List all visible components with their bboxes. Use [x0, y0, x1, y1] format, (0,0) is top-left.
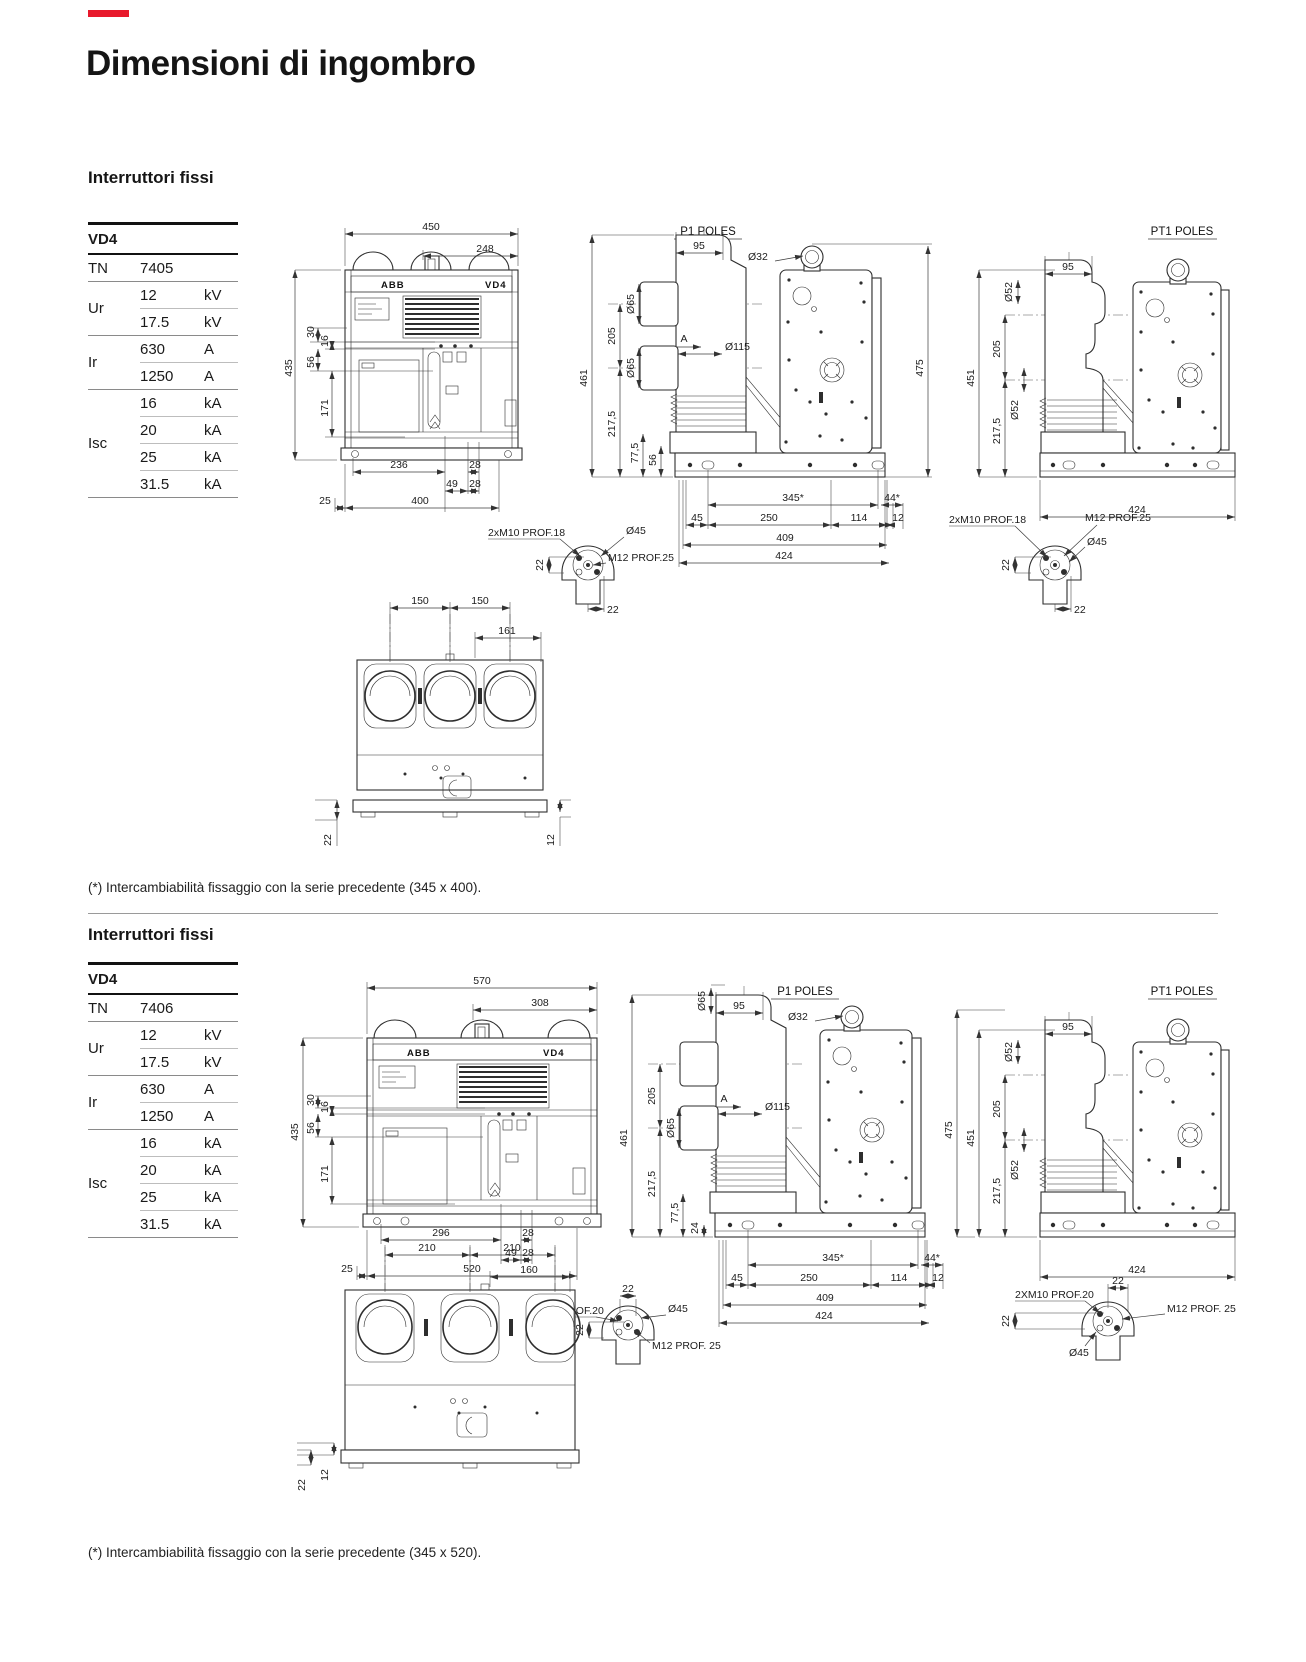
- dim-461: 461: [578, 369, 590, 387]
- p1-base-rail: [675, 453, 885, 477]
- detail-dim-22a: 22: [622, 1283, 634, 1295]
- section-divider: [88, 913, 1218, 914]
- dim-205: 205: [606, 327, 618, 345]
- dim-114: 114: [851, 512, 868, 524]
- dim-o65-top: Ø65: [696, 991, 708, 1011]
- section-arrow-a: A: [680, 333, 687, 345]
- row-value: 17.5: [140, 1049, 204, 1076]
- pt1-poles-drawing-7405: PT1 POLES: [945, 220, 1285, 640]
- dim-12: 12: [545, 834, 557, 846]
- row-value: 31.5: [140, 471, 204, 498]
- row-unit: kV: [204, 1049, 238, 1076]
- pt1-pole-outline: [1040, 1020, 1125, 1213]
- row-unit: kV: [204, 282, 238, 309]
- row-unit: A: [204, 1076, 238, 1103]
- dim-409: 409: [816, 1292, 834, 1304]
- footnote-1: (*) Intercambiabilità fissaggio con la s…: [88, 880, 481, 895]
- detail-o45-label: Ø45: [626, 525, 646, 537]
- dim-25: 25: [319, 495, 331, 507]
- dim-451: 451: [965, 369, 977, 387]
- dim-475: 475: [945, 1121, 955, 1139]
- row-label: TN: [88, 994, 140, 1022]
- dim-o52-upper: Ø52: [1003, 282, 1015, 302]
- dim-56: 56: [647, 454, 659, 466]
- row-value: 630: [140, 1076, 204, 1103]
- dim-435: 435: [289, 1123, 301, 1141]
- row-value: 16: [140, 390, 204, 417]
- pt1-mounting-detail: 2xM10 PROF.18 M12 PROF.25 Ø45 22 22: [949, 512, 1151, 616]
- row-unit: kV: [204, 1022, 238, 1049]
- dim-345: 345*: [822, 1252, 844, 1264]
- dim-49: 49: [446, 478, 458, 490]
- dim-o115: Ø115: [765, 1101, 790, 1113]
- dim-461: 461: [618, 1129, 630, 1147]
- dim-205: 205: [991, 1100, 1003, 1118]
- pt1-pole-outline: [1040, 260, 1125, 453]
- row-value: 20: [140, 417, 204, 444]
- abb-logo-text: ABB: [381, 280, 405, 291]
- pt1-title: PT1 POLES: [1151, 226, 1214, 238]
- dim-30: 30: [305, 1094, 317, 1106]
- detail-dim-22b: 22: [1000, 1315, 1012, 1327]
- dim-409: 409: [776, 532, 794, 544]
- detail-o45-label: Ø45: [1087, 536, 1107, 548]
- dim-45: 45: [731, 1272, 743, 1284]
- row-label: Ur: [88, 282, 140, 336]
- row-unit: kA: [204, 1184, 238, 1211]
- detail-m10-label: 2XM10 PROF.20: [1015, 1289, 1094, 1301]
- detail-m12-label: M12 PROF. 25: [652, 1340, 721, 1352]
- detail-m12-label: M12 PROF.25: [608, 552, 674, 564]
- row-unit: kA: [204, 444, 238, 471]
- dim-570: 570: [473, 975, 491, 987]
- dim-435: 435: [285, 359, 295, 377]
- detail-m10-label: 2xM10 PROF.18: [949, 514, 1026, 526]
- dim-o65-lower: Ø65: [625, 358, 637, 378]
- dim-77-5: 77,5: [629, 443, 641, 464]
- row-unit: kV: [204, 309, 238, 336]
- row-value: 7406: [140, 994, 204, 1022]
- dim-171: 171: [319, 399, 331, 417]
- dim-250: 250: [760, 512, 778, 524]
- row-value: 16: [140, 1130, 204, 1157]
- dim-210a: 210: [418, 1242, 436, 1254]
- row-value: 1250: [140, 1103, 204, 1130]
- product-name: VD4: [88, 224, 238, 255]
- pt1-base-rail: [1040, 1213, 1235, 1237]
- row-label: Ir: [88, 336, 140, 390]
- dim-o65-upper: Ø65: [625, 294, 637, 314]
- row-label: TN: [88, 254, 140, 282]
- dim-o52-upper: Ø52: [1003, 1042, 1015, 1062]
- abb-logo-text: ABB: [407, 1048, 431, 1059]
- dim-345: 345*: [782, 492, 804, 504]
- dim-30: 30: [305, 326, 317, 338]
- dim-236: 236: [390, 459, 408, 471]
- row-value: 7405: [140, 254, 204, 282]
- pt1-poles-drawing-7406: PT1 POLES: [945, 980, 1285, 1400]
- dim-161: 161: [498, 625, 516, 637]
- row-unit: kA: [204, 1130, 238, 1157]
- dim-114: 114: [891, 1272, 908, 1284]
- dim-56: 56: [305, 1122, 317, 1134]
- dim-22: 22: [296, 1479, 308, 1491]
- dim-56: 56: [305, 356, 317, 368]
- dim-12: 12: [319, 1469, 331, 1481]
- bottom-view-drawing-7406: 210 210 160 22 12: [285, 1235, 590, 1565]
- p1-base-rail: [715, 1213, 925, 1237]
- detail-m10-label: 2xM10 PROF.18: [488, 527, 565, 539]
- dim-45: 45: [691, 512, 703, 524]
- row-label: Ir: [88, 1076, 140, 1130]
- dim-44: 44*: [884, 492, 900, 504]
- dim-95: 95: [1062, 261, 1074, 273]
- dim-217-5: 217,5: [991, 418, 1003, 444]
- detail-o45-label: Ø45: [668, 1303, 688, 1315]
- dim-77-5: 77,5: [669, 1203, 681, 1224]
- pt1-title: PT1 POLES: [1151, 986, 1214, 998]
- product-name: VD4: [88, 964, 238, 995]
- pt1-base-rail: [1040, 453, 1235, 477]
- detail-dim-22b: 22: [607, 604, 619, 616]
- row-unit: kA: [204, 471, 238, 498]
- pt1-mounting-detail: 22 2XM10 PROF.20 M12 PROF. 25 Ø45 22: [1000, 1275, 1236, 1360]
- dim-217-5: 217,5: [646, 1171, 658, 1197]
- dim-o32: Ø32: [748, 251, 768, 263]
- dim-95: 95: [1062, 1021, 1074, 1033]
- dim-250: 250: [800, 1272, 818, 1284]
- dim-424: 424: [775, 550, 793, 562]
- dim-95: 95: [733, 1000, 745, 1012]
- section2-heading: Interruttori fissi: [88, 925, 214, 945]
- section1-heading: Interruttori fissi: [88, 168, 214, 188]
- dim-217-5: 217,5: [606, 411, 618, 437]
- footnote-2: (*) Intercambiabilità fissaggio con la s…: [88, 1545, 481, 1560]
- dim-424: 424: [1128, 1264, 1146, 1276]
- dim-150b: 150: [471, 595, 489, 607]
- dim-44: 44*: [924, 1252, 940, 1264]
- dim-22: 22: [322, 834, 334, 846]
- detail-dim-22a: 22: [1112, 1275, 1124, 1287]
- abb-red-accent-bar: [88, 10, 129, 17]
- detail-m12-label: M12 PROF. 25: [1167, 1303, 1236, 1315]
- dim-217-5: 217,5: [991, 1178, 1003, 1204]
- row-value: 17.5: [140, 309, 204, 336]
- row-unit: A: [204, 1103, 238, 1130]
- dim-475: 475: [914, 359, 926, 377]
- detail-o45-label: Ø45: [1069, 1347, 1089, 1359]
- row-unit: A: [204, 363, 238, 390]
- detail-m12-label: M12 PROF.25: [1085, 512, 1151, 524]
- page-title: Dimensioni di ingombro: [86, 44, 476, 84]
- dim-171: 171: [319, 1165, 331, 1183]
- dim-12: 12: [892, 512, 904, 524]
- row-value: 25: [140, 1184, 204, 1211]
- dim-16: 16: [319, 1101, 331, 1113]
- row-value: 1250: [140, 363, 204, 390]
- pt1-mechanism-box: [1103, 259, 1229, 453]
- dim-210b: 210: [503, 1242, 521, 1254]
- dim-24: 24: [689, 1222, 701, 1234]
- row-label: Isc: [88, 1130, 140, 1238]
- row-unit: kA: [204, 1211, 238, 1238]
- section-arrow-a: A: [720, 1093, 727, 1105]
- row-unit: kA: [204, 1157, 238, 1184]
- spec-table-7406: VD4 TN 7406 Ur 12kV 17.5kV Ir 630A 1250A…: [88, 962, 238, 1238]
- row-value: 25: [140, 444, 204, 471]
- bottom-view-drawing-7405: 150 150 161 22 12: [285, 550, 575, 870]
- detail-dim-22a: 22: [1000, 559, 1012, 571]
- row-unit: A: [204, 336, 238, 363]
- bottom-view-outline: [341, 1284, 580, 1468]
- dim-o115: Ø115: [725, 341, 750, 353]
- dim-150a: 150: [411, 595, 429, 607]
- catalog-page: Dimensioni di ingombro Interruttori fiss…: [0, 0, 1306, 1662]
- pt1-mechanism-box: [1103, 1019, 1229, 1213]
- row-value: 630: [140, 336, 204, 363]
- bottom-view-outline: [353, 654, 547, 817]
- dim-95: 95: [693, 240, 705, 252]
- dim-o32: Ø32: [788, 1011, 808, 1023]
- dim-400: 400: [411, 495, 429, 507]
- row-unit: kA: [204, 417, 238, 444]
- row-value: 20: [140, 1157, 204, 1184]
- dim-o65-lower: Ø65: [665, 1118, 677, 1138]
- dim-o52-lower: Ø52: [1009, 1160, 1021, 1180]
- row-unit: kA: [204, 390, 238, 417]
- dim-424: 424: [815, 1310, 833, 1322]
- row-label: Isc: [88, 390, 140, 498]
- dim-205: 205: [646, 1087, 658, 1105]
- p1-title: P1 POLES: [777, 986, 833, 998]
- row-label: Ur: [88, 1022, 140, 1076]
- p1-mechanism-box: [786, 1006, 921, 1213]
- detail-dim-22b: 22: [1074, 604, 1086, 616]
- row-value: 31.5: [140, 1211, 204, 1238]
- row-value: 12: [140, 1022, 204, 1049]
- row-value: 12: [140, 282, 204, 309]
- dim-16: 16: [319, 335, 331, 347]
- dim-12: 12: [932, 1272, 944, 1284]
- dim-450: 450: [422, 221, 440, 233]
- spec-table-7405: VD4 TN 7405 Ur 12kV 17.5kV Ir 630A 1250A…: [88, 222, 238, 498]
- p1-mechanism-box: [746, 246, 881, 453]
- dim-160: 160: [520, 1264, 538, 1276]
- dim-205: 205: [991, 340, 1003, 358]
- dim-o52-lower: Ø52: [1009, 400, 1021, 420]
- dim-451: 451: [965, 1129, 977, 1147]
